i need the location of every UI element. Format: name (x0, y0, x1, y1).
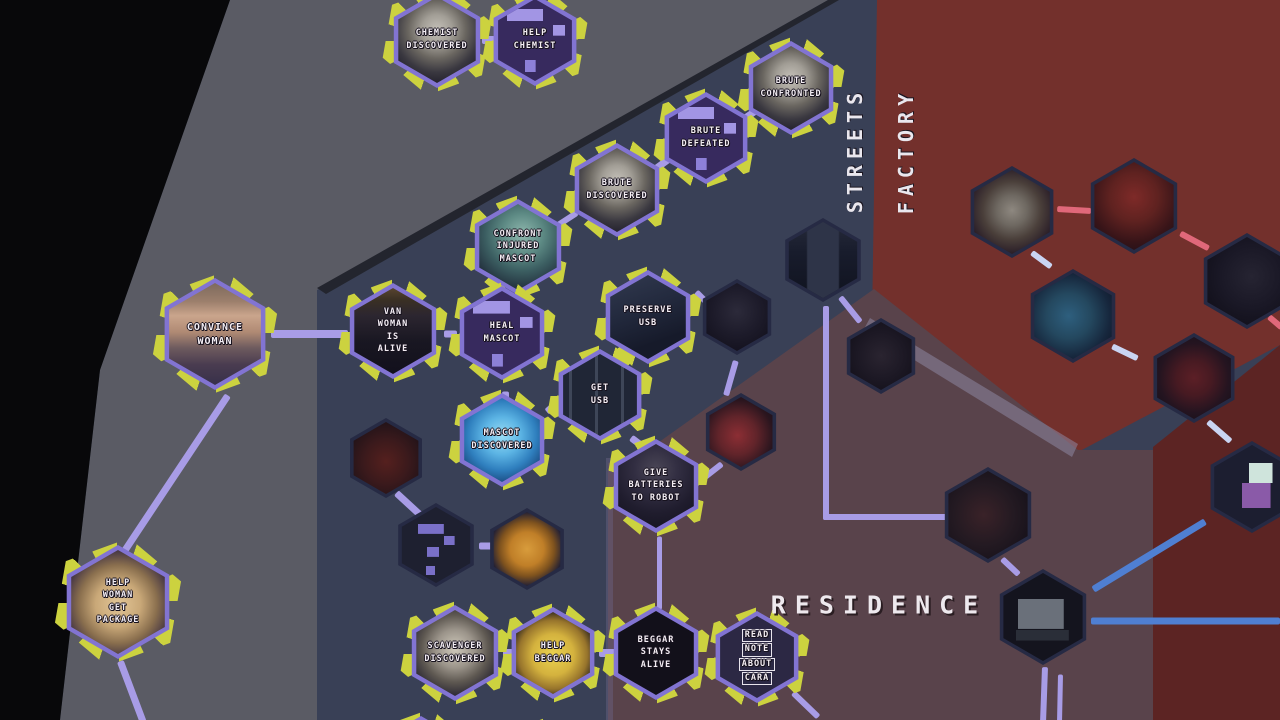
district-label-factory: FACTORY (894, 88, 918, 214)
node-beggar-stays-alive[interactable]: BEGGARSTAYSALIVE (609, 606, 703, 700)
node-help-chemist[interactable]: HELPCHEMIST (489, 0, 581, 86)
quest-node-label: BRUTEDISCOVERED (570, 143, 664, 237)
node-scavenger-discovered[interactable]: SCAVENGERDISCOVERED (407, 605, 503, 701)
node-brute-defeated[interactable]: BRUTEDEFEATED (660, 92, 752, 184)
connector-line (823, 306, 829, 520)
node-locked-phone-booth[interactable] (781, 218, 865, 302)
node-give-batteries-to-robot[interactable]: GIVEBATTERIESTO ROBOT (609, 439, 703, 533)
district-label-streets: STREETS (843, 87, 867, 213)
quest-node-label: CHEMISTDISCOVERED (389, 0, 485, 88)
node-locked-figure[interactable] (346, 418, 426, 498)
connector-line (823, 514, 952, 520)
quest-node-label: CONVINCEWOMAN (159, 278, 271, 390)
quest-node-label: BEGGARSTAYSALIVE (609, 606, 703, 700)
quest-node-label: HELPBEGGAR (507, 607, 599, 699)
node-locked-hooded-figure[interactable] (699, 279, 775, 355)
hex-dash-ring (479, 705, 609, 720)
quest-node-label: GETUSB (554, 349, 646, 441)
quest-node-label: SCAVENGERDISCOVERED (407, 605, 503, 701)
quest-node-label: HELPCHEMIST (489, 0, 581, 86)
dark-clutter-art (944, 471, 1032, 559)
node-locked-red-logo[interactable] (1149, 333, 1239, 423)
dark-redlogo-art (1153, 337, 1235, 419)
node-read-note-about-cara[interactable]: READNOTEABOUTCARA (711, 611, 803, 703)
node-locked-question[interactable] (394, 503, 478, 587)
node-confront-injured-mascot[interactable]: CONFRONTINJUREDMASCOT (470, 199, 566, 295)
node-van-woman-is-alive[interactable]: VANWOMANISALIVE (345, 283, 441, 379)
quest-node-label: MASCOTDISCOVERED (455, 393, 549, 487)
portrait-bluehood-art (1030, 273, 1116, 359)
connector-line (1091, 618, 1280, 625)
dark-face2-art (1203, 237, 1280, 325)
node-chemist-discovered[interactable]: CHEMISTDISCOVERED (389, 0, 485, 88)
node-locked-crate[interactable] (940, 467, 1036, 563)
quest-node-label: READNOTEABOUTCARA (711, 611, 803, 703)
node-brute-discovered[interactable]: BRUTEDISCOVERED (570, 143, 664, 237)
node-locked-blue-hood[interactable] (1026, 269, 1120, 363)
node-locked-extinguisher[interactable] (702, 393, 780, 471)
node-locked-pumpkin[interactable] (486, 508, 568, 590)
connector-line (1057, 675, 1063, 720)
quest-node-label: VANWOMANISALIVE (345, 283, 441, 379)
node-help-beggar[interactable]: HELPBEGGAR (507, 607, 599, 699)
district-label-residence: RESIDENCE (771, 591, 987, 620)
node-mascot-discovered[interactable]: MASCOTDISCOVERED (455, 393, 549, 487)
node-locked-red-hood[interactable] (1086, 158, 1182, 254)
node-get-usb[interactable]: GETUSB (554, 349, 646, 441)
portrait-redhood-art (1090, 162, 1178, 250)
node-convince-woman[interactable]: CONVINCEWOMAN (159, 278, 271, 390)
quest-node-label: BRUTEDEFEATED (660, 92, 752, 184)
quest-node-label: CONFRONTINJUREDMASCOT (470, 199, 566, 295)
laptop-art (999, 573, 1087, 661)
connector-line (657, 537, 662, 610)
node-locked-floppy[interactable] (1206, 441, 1280, 533)
quest-map: CHEMISTDISCOVEREDHELPCHEMISTBRUTECONFRON… (0, 0, 1280, 720)
node-heal-mascot[interactable]: HEALMASCOT (455, 286, 549, 380)
node-locked-shadow-figure[interactable] (1199, 233, 1280, 329)
hex-border (373, 716, 469, 720)
node-partial-bottom-1[interactable] (373, 716, 469, 720)
quest-node-label: GIVEBATTERIESTO ROBOT (609, 439, 703, 533)
portrait-butcher-art (970, 170, 1054, 254)
node-locked-machine[interactable] (843, 318, 919, 394)
node-help-woman-get-package[interactable]: HELPWOMANGETPACKAGE (61, 545, 175, 659)
connector-line (271, 330, 348, 338)
node-locked-butcher[interactable] (966, 166, 1058, 258)
node-locked-laptop[interactable] (995, 569, 1091, 665)
quest-node-label: HEALMASCOT (455, 286, 549, 380)
quest-node-label: HELPWOMANGETPACKAGE (61, 545, 175, 659)
floppy-art (1210, 445, 1280, 529)
